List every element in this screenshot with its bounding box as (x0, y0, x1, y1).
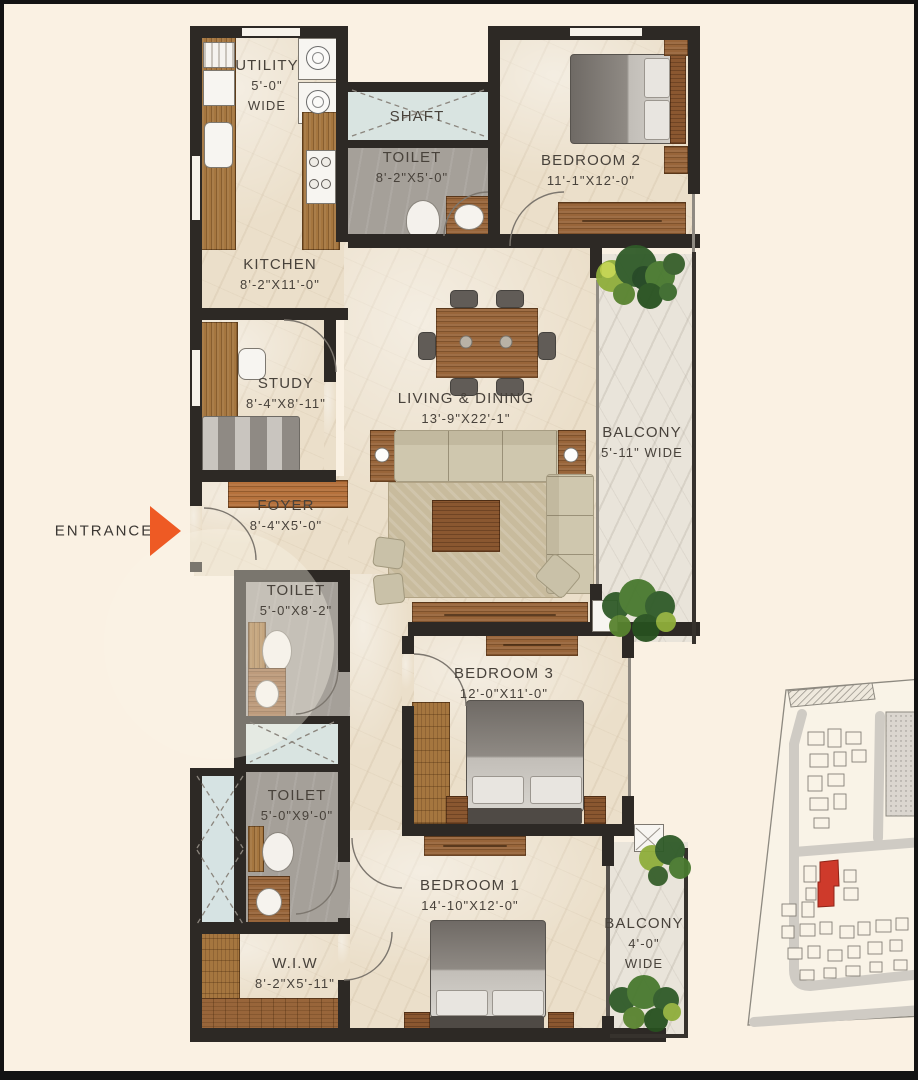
balcony-bottom-railing (684, 848, 688, 1036)
entrance-door-patch (190, 504, 202, 562)
bedroom2-name: BEDROOM 2 (541, 151, 641, 171)
bedroom2-side-panel (664, 146, 688, 174)
wall (338, 980, 350, 1030)
kitchen-dims: 8'-2"X11'-0" (240, 275, 320, 295)
toilet-mid-dims: 5'-0"X8'-2" (260, 601, 333, 621)
balcony-bottom-dim: 4'-0" (604, 934, 683, 954)
living-name: LIVING & DINING (398, 389, 535, 409)
bedroom2-dims: 11'-1"X12'-0" (541, 171, 641, 191)
bedroom1-name: BEDROOM 1 (420, 876, 520, 896)
wall (348, 82, 494, 92)
bedroom3-name: BEDROOM 3 (454, 664, 554, 684)
floor-plan-canvas: UTILITY 5'-0" WIDE SHAFT TOILET 8'-2"X5'… (0, 0, 918, 1080)
bedroom3-door-patch (402, 654, 414, 706)
bedroom3-pillow-1 (472, 776, 524, 804)
utility-appliance-1 (298, 38, 340, 80)
toilet-mid-door-patch (338, 670, 350, 716)
balcony-bottom-railing-2 (610, 1034, 688, 1038)
room-label-kitchen: KITCHEN 8'-2"X11'-0" (240, 255, 320, 295)
wall (190, 470, 336, 482)
bedroom2-window (692, 194, 695, 252)
toilet-top-name: TOILET (376, 148, 449, 168)
living-dims: 13'-9"X22'-1" (398, 409, 535, 429)
study-desk (200, 322, 238, 426)
bedroom3-nightstand-left (446, 796, 468, 824)
utility-washer (203, 70, 235, 106)
corridor-floor (344, 574, 408, 836)
room-label-shaft: SHAFT (390, 107, 445, 127)
wall (338, 570, 350, 672)
kitchen-stove (306, 150, 336, 204)
wall (190, 768, 242, 776)
window-gap (570, 28, 642, 36)
ac-ledge-living (592, 600, 618, 632)
wall (488, 26, 500, 248)
wall (190, 922, 350, 934)
window-gap (192, 350, 200, 406)
bedroom1-dims: 14'-10"X12'-0" (420, 896, 520, 916)
wall (408, 622, 700, 636)
wall (348, 234, 700, 248)
study-dims: 8'-4"X8'-11" (246, 394, 326, 414)
bedroom3-wardrobe-top (486, 634, 578, 656)
wiw-dim: 8'-2"X5'-11" (255, 974, 335, 994)
room-label-bedroom3: BEDROOM 3 12'-0"X11'-0" (454, 664, 554, 704)
wall (590, 248, 602, 278)
bedroom1-pillow-1 (436, 990, 488, 1016)
toilet-low-door-patch (338, 862, 350, 918)
site-map (744, 674, 918, 1049)
coffee-table (432, 500, 500, 552)
wiw-wardrobe-bottom (200, 998, 344, 1032)
bedroom2-pillow-1 (644, 58, 670, 98)
wall (402, 706, 414, 824)
bedroom3-pillow-2 (530, 776, 582, 804)
dining-chair (538, 332, 556, 360)
site-dotted-block (886, 712, 918, 816)
room-label-toilet-top: TOILET 8'-2"X5'-0" (376, 148, 449, 188)
wall (190, 308, 348, 320)
balcony-bottom-name: BALCONY (604, 914, 683, 934)
living-balcony-window (596, 280, 599, 584)
bedroom1-wardrobe (424, 836, 526, 856)
room-label-balcony-bottom: BALCONY 4'-0" WIDE (604, 914, 683, 974)
wall (336, 26, 348, 242)
balcony-bottom-wide: WIDE (604, 954, 683, 974)
wiw-wardrobe-left (200, 932, 240, 1006)
dining-table (436, 308, 538, 378)
utility-dim: 5'-0" (235, 76, 299, 96)
room-label-bedroom1: BEDROOM 1 14'-10"X12'-0" (420, 876, 520, 916)
shaft-name: SHAFT (390, 107, 445, 127)
wall (234, 570, 246, 934)
wall (622, 796, 634, 824)
shaft2-floor (242, 720, 344, 768)
utility-drawer-unit (203, 42, 235, 68)
toilet-top-basin-bowl (454, 204, 484, 230)
toilet-top-dims: 8'-2"X5'-0" (376, 168, 449, 188)
ac-ledge-balcony (634, 824, 664, 852)
living-pouf-2 (373, 573, 406, 606)
bedroom2-pillow-2 (644, 100, 670, 140)
wall (338, 716, 350, 862)
toilet-mid-wc (262, 630, 292, 672)
entrance-arrow-icon (150, 506, 181, 556)
room-label-utility: UTILITY 5'-0" WIDE (235, 56, 299, 116)
room-label-living-dining: LIVING & DINING 13'-9"X22'-1" (398, 389, 535, 429)
study-name: STUDY (246, 374, 326, 394)
wall (602, 1016, 614, 1030)
bedroom3-wardrobe-left (412, 702, 450, 824)
toilet-mid-basin-bowl (255, 680, 279, 708)
dining-chair (496, 290, 524, 308)
wiw-name: W.I.W (255, 954, 335, 974)
room-label-study: STUDY 8'-4"X8'-11" (246, 374, 326, 414)
window-gap (192, 156, 200, 220)
toilet-mid-name: TOILET (260, 581, 333, 601)
room-label-foyer: FOYER 8'-4"X5'-0" (250, 496, 323, 536)
room-label-wiw: W.I.W 8'-2"X5'-11" (255, 954, 335, 994)
room-label-bedroom2: BEDROOM 2 11'-1"X12'-0" (541, 151, 641, 191)
wall (246, 716, 338, 724)
living-sofa (394, 430, 560, 482)
bedroom3-dims: 12'-0"X11'-0" (454, 684, 554, 704)
bedroom3-nightstand-right (584, 796, 606, 824)
toilet-low-wc (262, 832, 294, 872)
kitchen-name: KITCHEN (240, 255, 320, 275)
wall (190, 1028, 666, 1042)
utility-wide: WIDE (235, 96, 299, 116)
utility-name: UTILITY (235, 56, 299, 76)
living-pouf-1 (372, 536, 406, 570)
bedroom3-headboard (466, 808, 582, 824)
wall (190, 562, 202, 572)
kitchen-sink (204, 122, 233, 168)
window-gap (242, 28, 300, 36)
bedroom1-pillow-2 (492, 990, 544, 1016)
wall (190, 768, 202, 930)
wall (348, 140, 494, 148)
study-daybed (202, 416, 300, 472)
wall (246, 764, 338, 772)
entrance-label: ENTRANCE (55, 523, 154, 540)
wall (602, 836, 614, 866)
toilet-low-name: TOILET (261, 786, 334, 806)
bedroom2-headboard (670, 54, 686, 144)
wall (688, 26, 700, 194)
wall (622, 636, 634, 658)
balcony-right-name: BALCONY (601, 423, 683, 443)
balcony-right-dims: 5'-11" WIDE (601, 443, 683, 463)
balcony-right-railing (692, 252, 696, 644)
wall (190, 934, 202, 1042)
wall (402, 636, 414, 654)
foyer-dims: 8'-4"X5'-0" (250, 516, 323, 536)
room-label-balcony-right: BALCONY 5'-11" WIDE (601, 423, 683, 463)
bedroom3-window (628, 658, 631, 796)
side-table-left (370, 430, 396, 482)
toilet-low-dims: 5'-0"X9'-0" (261, 806, 334, 826)
foyer-name: FOYER (250, 496, 323, 516)
wall (402, 824, 636, 836)
dining-chair (418, 332, 436, 360)
wall (324, 320, 336, 382)
toilet-low-basin-bowl (256, 888, 282, 916)
dining-chair (450, 290, 478, 308)
wiw-door-patch (338, 932, 350, 980)
room-label-toilet-mid: TOILET 5'-0"X8'-2" (260, 581, 333, 621)
room-label-toilet-low: TOILET 5'-0"X9'-0" (261, 786, 334, 826)
